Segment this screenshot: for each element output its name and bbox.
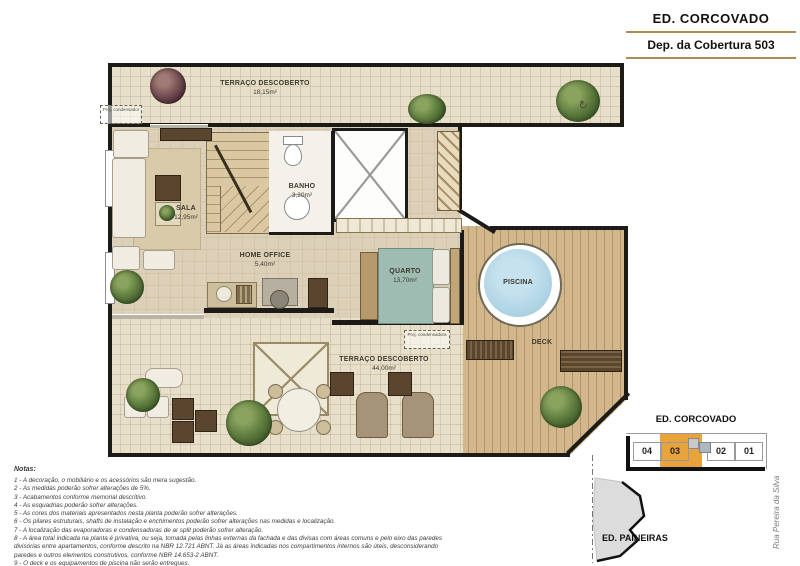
floorplan-sheet: ED. CORCOVADO Dep. da Cobertura 503 (0, 0, 800, 566)
neighbor-fill (593, 478, 644, 561)
dining-chair (316, 384, 331, 399)
lounger-1 (356, 392, 388, 438)
wall-right (624, 226, 628, 400)
bedroom-chest (360, 252, 378, 320)
note-item: 1 - A decoração, o mobiliário e os acess… (14, 477, 452, 485)
dining-chair (268, 384, 283, 399)
deck-planter-row (466, 340, 514, 360)
bed-pillow-1 (432, 249, 450, 285)
office-chair (270, 290, 289, 309)
wall-office-south (204, 308, 334, 313)
pool-water (484, 249, 552, 317)
bed-pillow-2 (432, 287, 450, 323)
unit-title: Dep. da Cobertura 503 (626, 33, 796, 57)
media-console (160, 128, 212, 141)
neighbor-building-shape (592, 460, 712, 566)
keyplan-unit-04: 04 (633, 442, 661, 461)
wall-top (108, 63, 624, 67)
deck-bench (560, 350, 622, 372)
exterior-cutout (461, 127, 628, 227)
plant (126, 378, 160, 412)
keyplan-core-1 (688, 438, 699, 449)
bathroom-floor (269, 131, 334, 235)
condenser-box-1: Proj. condensador (100, 105, 142, 124)
bathroom-sink (284, 194, 310, 220)
sofa (112, 158, 146, 238)
neighbor-label: ED. PAINEIRAS (602, 533, 682, 543)
side-table-plant (159, 205, 175, 221)
keyplan-unit-01: 01 (735, 442, 763, 461)
note-item: 8 - A área total indicada na planta é pr… (14, 535, 452, 560)
armchair-bottom (112, 246, 140, 270)
dining-table (277, 388, 321, 432)
condenser-label-1: Proj. condensador (103, 107, 140, 112)
dining-chair (316, 420, 331, 435)
wall-top-terrace-right (620, 63, 624, 127)
tv-unit (155, 175, 181, 201)
keyplan-title: ED. CORCOVADO (626, 414, 766, 425)
office-cabinet (308, 278, 328, 308)
wall-deck-top (490, 226, 628, 230)
note-item: 9 - O deck e os equipamentos de piscina … (14, 560, 452, 566)
street-label: Rua Pereira da Silva (772, 462, 786, 562)
note-item: 6 - Os pilares estruturais, shafts de in… (14, 518, 452, 526)
pet-basket (216, 286, 232, 302)
terrace-planter-1 (330, 372, 354, 396)
note-item: 3 - Acabamentos conforme memorial descri… (14, 494, 452, 502)
wall-bottom (108, 453, 570, 457)
wall-under-terrace (460, 123, 624, 127)
notes-title: Notas: (14, 466, 452, 473)
building-title: ED. CORCOVADO (626, 8, 796, 31)
condenser-label-2: Proj. condensadora (407, 332, 446, 337)
plant (408, 94, 446, 124)
condenser-box-2: Proj. condensadora (404, 330, 450, 349)
toilet-bowl (284, 144, 302, 166)
patio-door-sala (112, 314, 204, 319)
dark-planter (172, 421, 194, 443)
dark-planter (172, 398, 194, 420)
notes-block: Notas: 1 - A decoração, o mobiliário e o… (14, 466, 452, 566)
bed-headboard (450, 248, 460, 324)
dark-planter (195, 410, 217, 432)
note-item: 5 - As cores dos materiais apresentados … (14, 510, 452, 518)
bed-blanket (378, 248, 434, 324)
stairs-winder (220, 186, 269, 232)
title-block: ED. CORCOVADO Dep. da Cobertura 503 (626, 8, 796, 59)
plant (110, 270, 144, 304)
property-line (592, 455, 593, 563)
elevator-shaft (332, 128, 408, 222)
lounger-2 (402, 392, 434, 438)
keyplan-unit-02: 02 (707, 442, 735, 461)
note-item: 7 - A localização das evaporadoras e con… (14, 527, 452, 535)
title-rule-2 (626, 57, 796, 59)
wardrobe-hatch (437, 131, 460, 211)
keyplan-unit-03: 03 (661, 442, 689, 461)
armchair-top (113, 130, 149, 158)
book-stack (236, 285, 252, 304)
closet-row (336, 218, 462, 233)
note-item: 2 - As medidas poderão sofrer alterações… (14, 485, 452, 493)
terrace-planter-2 (388, 372, 412, 396)
note-item: 4 - As esquadrias poderão sofrer alteraç… (14, 502, 452, 510)
plant (226, 400, 272, 446)
ottoman (143, 250, 175, 270)
terrace-top-floor (110, 65, 622, 127)
plant (150, 68, 186, 104)
wall-quarto-east (460, 230, 464, 325)
plant (540, 386, 582, 428)
keyplan-core-2 (699, 442, 711, 453)
